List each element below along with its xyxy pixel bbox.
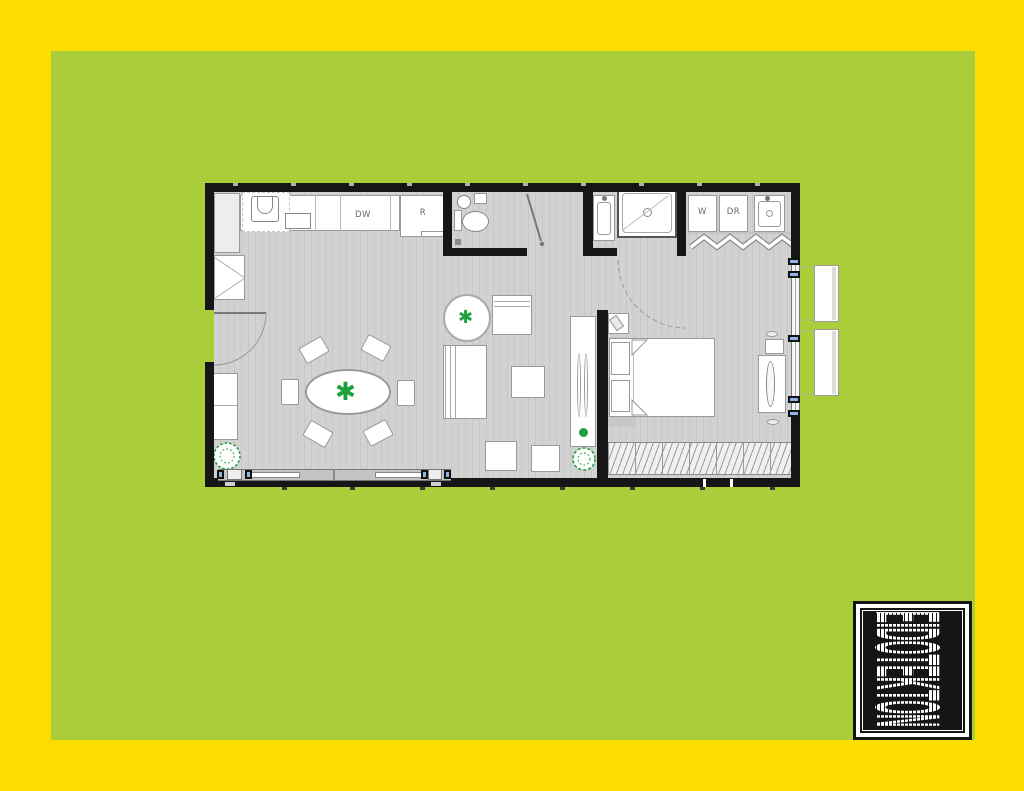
wall-vanity xyxy=(583,183,593,256)
wall-tick-bottom xyxy=(560,487,565,490)
sofa-back-lines xyxy=(445,346,456,418)
window-jamb-marker xyxy=(788,258,800,265)
logo-deco-stripes xyxy=(864,613,961,728)
stool-icon xyxy=(767,419,779,425)
exterior-shutter-shade xyxy=(832,331,836,394)
kitchen-sink-bowl xyxy=(257,196,273,214)
bedroom-side-table xyxy=(765,339,784,354)
wall-tick xyxy=(697,183,702,186)
window-jamb-marker xyxy=(421,470,428,479)
wall-tick xyxy=(755,183,760,186)
refrigerator-label: R xyxy=(405,208,441,218)
logo-inner-box: EIDOTEKTON xyxy=(860,608,965,733)
laundry-faucet-icon xyxy=(765,196,770,201)
toilet-tank-icon xyxy=(454,210,462,231)
toilet-bowl-icon xyxy=(462,211,489,232)
floor-cushion xyxy=(485,441,517,471)
wall-right-lower xyxy=(791,415,800,487)
cooktop-icon xyxy=(285,213,311,229)
pillow xyxy=(611,342,630,375)
bedroom-deck-rug xyxy=(607,442,795,475)
wall-tick xyxy=(581,183,586,186)
wall-shower-column xyxy=(677,183,686,256)
wall-tick xyxy=(349,183,354,186)
wall-bedroom-divider xyxy=(597,310,608,487)
window-jamb-marker xyxy=(788,410,800,417)
window-end-block xyxy=(428,469,442,480)
window-jamb-marker xyxy=(788,335,800,342)
kitchen-corner-cabinet xyxy=(214,255,245,300)
window-jamb-marker xyxy=(788,396,800,403)
window-end-block xyxy=(227,469,242,480)
window-jamb-marker xyxy=(245,470,252,479)
vanity-basin xyxy=(597,202,611,235)
window-jamb-marker xyxy=(788,271,800,278)
dryer-label: DR xyxy=(719,207,748,217)
window-pane xyxy=(375,472,425,478)
floor-plan: DW R W DR ✱ xyxy=(205,183,800,487)
floor-drain-icon xyxy=(455,239,461,245)
pillow xyxy=(611,380,630,412)
dining-chair xyxy=(397,380,415,406)
window-jamb-marker xyxy=(444,470,451,479)
media-cabinet-door xyxy=(584,353,588,417)
bath-basin-icon xyxy=(457,195,471,209)
window-step-stub xyxy=(431,482,441,486)
counter-divider xyxy=(340,195,341,231)
entry-cabinet-divider xyxy=(214,405,237,406)
wall-tick xyxy=(233,183,238,186)
wall-tick-bottom xyxy=(282,487,287,490)
dining-plant-icon: ✱ xyxy=(335,379,356,404)
stool-icon xyxy=(766,331,778,337)
wall-tick xyxy=(407,183,412,186)
wall-tick-bottom xyxy=(490,487,495,490)
wall-tick-bottom xyxy=(770,487,775,490)
dining-chair xyxy=(281,379,299,405)
wall-tick-bottom xyxy=(350,487,355,490)
eidotekton-logo: EIDOTEKTON xyxy=(853,601,972,740)
wall-right-upper xyxy=(791,183,800,258)
window-jamb-marker xyxy=(217,470,224,479)
media-cabinet-door xyxy=(577,353,581,417)
washer-label: W xyxy=(688,207,717,217)
wall-bathroom-left xyxy=(443,183,452,256)
window-step-stub xyxy=(225,482,235,486)
counter-divider xyxy=(315,195,316,231)
counter-divider xyxy=(390,195,391,231)
wall-tick xyxy=(523,183,528,186)
wall-tick xyxy=(291,183,296,186)
coffee-table xyxy=(511,366,545,398)
poster-background: DW R W DR ✱ xyxy=(0,0,1024,791)
wall-tick-bottom xyxy=(700,487,705,490)
rug-plant-icon: ✱ xyxy=(458,309,473,327)
wall-window-slit xyxy=(730,479,733,487)
wall-left-lower xyxy=(205,362,214,487)
floor-cushion xyxy=(531,445,560,472)
window-pane xyxy=(248,472,300,478)
bath-shelf xyxy=(474,193,487,204)
refrigerator-shelf xyxy=(421,231,445,237)
wall-tick xyxy=(465,183,470,186)
wall-vanity-bottom xyxy=(583,248,617,256)
dresser-mirror-icon xyxy=(766,361,775,407)
accent-chair-cushion-line xyxy=(494,301,530,302)
floor xyxy=(214,192,791,478)
kitchen-counter-left xyxy=(214,193,240,253)
accent-chair-cushion-line xyxy=(494,306,530,307)
wall-tick-bottom xyxy=(630,487,635,490)
vanity-faucet-icon xyxy=(602,196,607,201)
dishwasher-label: DW xyxy=(343,210,383,220)
entry-cabinet xyxy=(213,373,238,440)
exterior-shutter-shade xyxy=(832,267,836,320)
laundry-drain-icon xyxy=(766,210,773,217)
wall-left-upper xyxy=(205,183,214,310)
wall-window-slit xyxy=(703,479,706,487)
bed-sheet-line xyxy=(633,339,634,416)
shower-drain-icon xyxy=(643,208,652,217)
wall-tick-bottom xyxy=(420,487,425,490)
small-plant-icon xyxy=(579,428,588,437)
wall-bathroom-bottom xyxy=(443,248,527,256)
window-band-divider xyxy=(333,469,335,481)
wall-tick xyxy=(639,183,644,186)
